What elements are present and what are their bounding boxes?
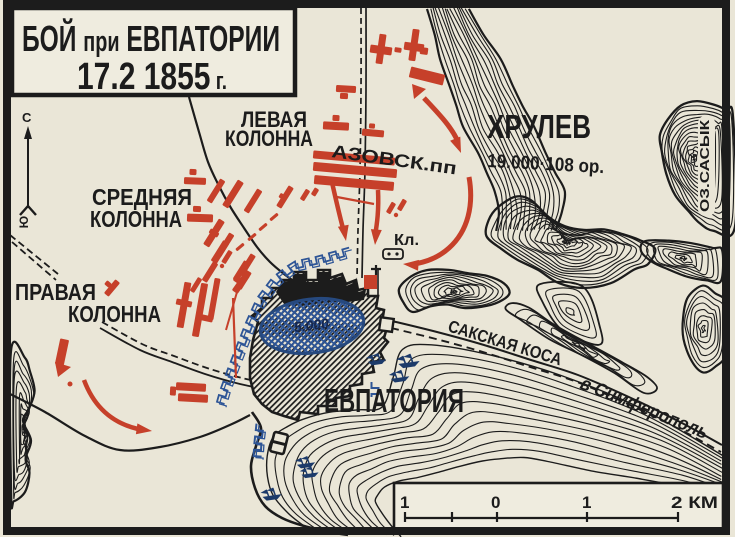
- svg-text:С: С: [22, 110, 32, 125]
- svg-text:ХРУЛЕВ: ХРУЛЕВ: [487, 108, 591, 145]
- svg-text:БОЙ при ЕВПАТОРИИ: БОЙ при ЕВПАТОРИИ: [22, 17, 280, 59]
- svg-text:КОЛОННА: КОЛОННА: [90, 206, 182, 232]
- svg-text:Кл.: Кл.: [394, 232, 419, 249]
- svg-text:0: 0: [491, 493, 500, 512]
- svg-text:КОЛОННА: КОЛОННА: [225, 126, 313, 151]
- svg-text:17.2 1855 г.: 17.2 1855 г.: [77, 56, 227, 98]
- svg-text:1: 1: [400, 493, 409, 512]
- svg-text:ЕВПАТОРИЯ: ЕВПАТОРИЯ: [324, 382, 464, 419]
- svg-text:КОЛОННА: КОЛОННА: [68, 301, 161, 327]
- svg-text:2 КМ: 2 КМ: [671, 493, 718, 512]
- svg-text:ОЗ.САСЫК: ОЗ.САСЫК: [697, 120, 712, 212]
- svg-text:Ю: Ю: [17, 216, 31, 228]
- svg-text:1: 1: [582, 493, 591, 512]
